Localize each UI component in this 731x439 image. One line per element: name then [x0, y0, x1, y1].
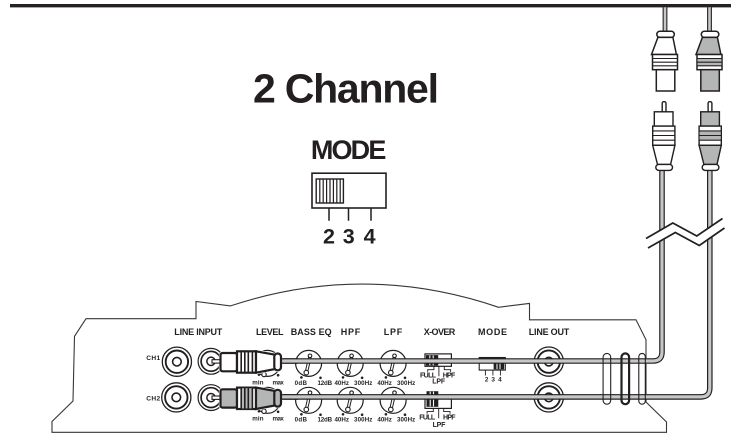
svg-text:X-OVER: X-OVER	[424, 327, 456, 337]
svg-text:0dB: 0dB	[295, 417, 308, 424]
svg-text:HPF: HPF	[443, 415, 456, 422]
svg-text:2: 2	[485, 377, 489, 384]
svg-text:12dB: 12dB	[318, 417, 333, 424]
svg-text:0dB: 0dB	[295, 380, 308, 387]
svg-text:min: min	[252, 415, 264, 422]
svg-text:LPF: LPF	[432, 378, 446, 385]
svg-text:HPF: HPF	[341, 327, 361, 337]
svg-text:LINE INPUT: LINE INPUT	[174, 327, 223, 337]
svg-text:40Hz: 40Hz	[377, 417, 392, 424]
svg-text:LPF: LPF	[384, 327, 403, 337]
svg-text:FULL: FULL	[419, 415, 436, 422]
svg-text:max: max	[273, 379, 285, 386]
svg-text:CH2: CH2	[146, 396, 160, 403]
svg-text:3: 3	[343, 225, 355, 249]
svg-text:max: max	[273, 415, 285, 422]
svg-text:2: 2	[323, 225, 335, 249]
svg-text:300Hz: 300Hz	[397, 417, 415, 424]
svg-text:40Hz: 40Hz	[377, 380, 392, 387]
svg-text:CH1: CH1	[146, 355, 160, 362]
svg-text:4: 4	[364, 225, 376, 249]
svg-text:300Hz: 300Hz	[354, 380, 372, 387]
svg-text:BASS EQ: BASS EQ	[291, 327, 332, 337]
svg-text:LINE OUT: LINE OUT	[529, 327, 570, 337]
svg-text:LEVEL: LEVEL	[256, 327, 284, 337]
svg-text:3: 3	[491, 377, 495, 384]
svg-text:12dB: 12dB	[318, 380, 333, 387]
svg-text:300Hz: 300Hz	[354, 417, 372, 424]
svg-text:LPF: LPF	[433, 422, 447, 429]
svg-text:MODE: MODE	[311, 135, 387, 165]
svg-text:2 Channel: 2 Channel	[253, 65, 439, 111]
svg-text:4: 4	[498, 377, 502, 384]
svg-text:40Hz: 40Hz	[334, 417, 349, 424]
svg-text:min: min	[252, 379, 264, 386]
svg-text:MODE: MODE	[478, 327, 507, 337]
svg-text:300Hz: 300Hz	[397, 380, 415, 387]
svg-text:40Hz: 40Hz	[334, 380, 349, 387]
